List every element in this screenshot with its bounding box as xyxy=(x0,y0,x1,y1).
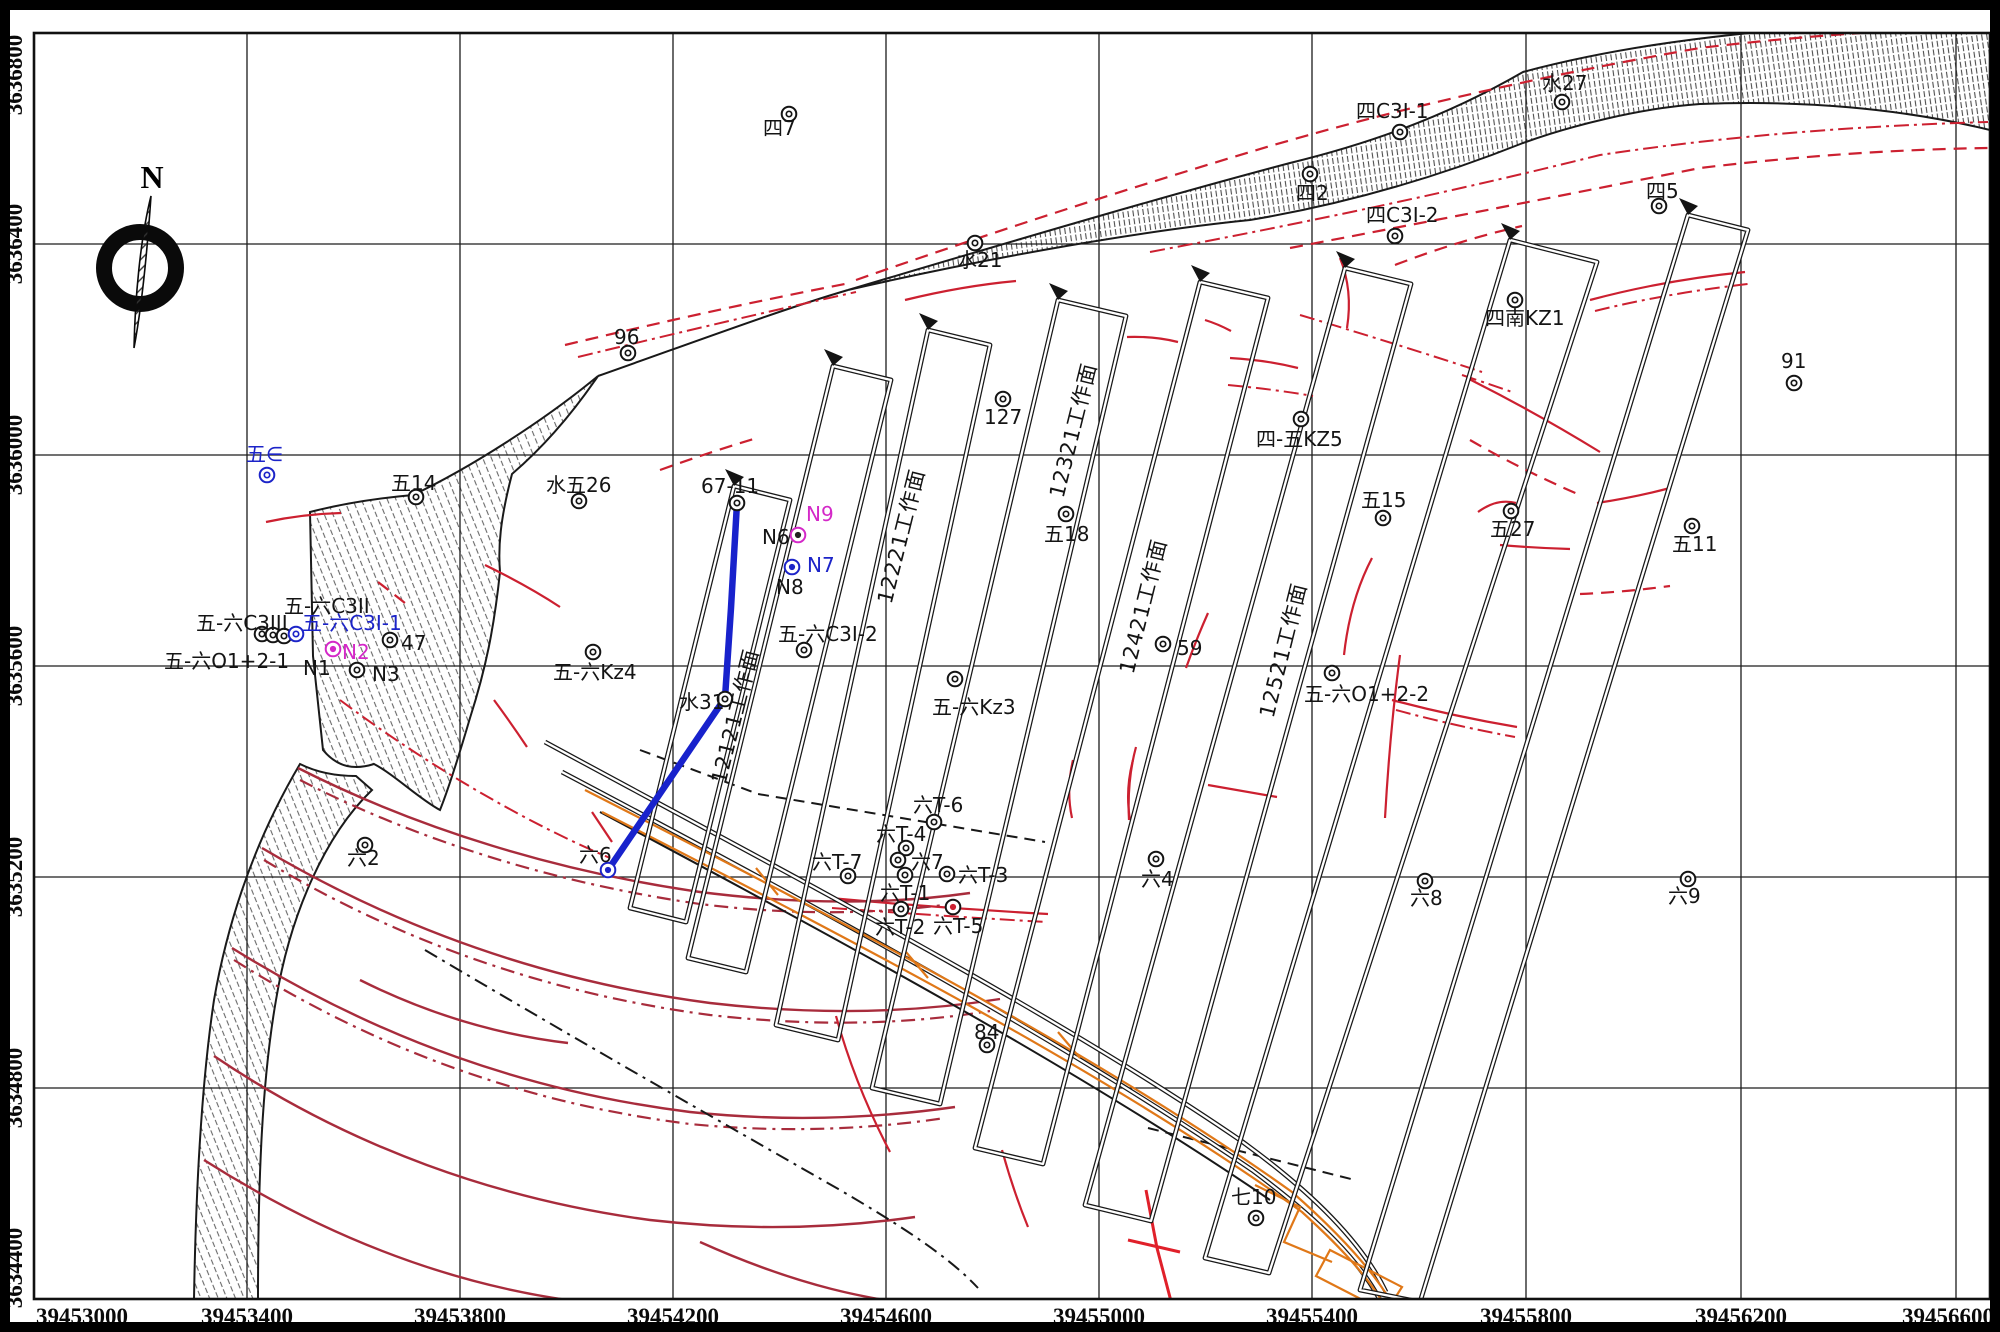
borehole-inner-ring xyxy=(895,857,900,862)
borehole-symbol xyxy=(1325,666,1340,681)
borehole-inner-ring xyxy=(1559,99,1564,104)
borehole-label: N9 xyxy=(806,502,834,526)
borehole-inner-ring xyxy=(354,667,359,672)
borehole-symbol xyxy=(948,672,963,687)
borehole-label: 五-六C3I-1 xyxy=(302,611,402,635)
borehole-label: N6 xyxy=(762,525,790,549)
borehole-label: 五15 xyxy=(1361,488,1406,512)
borehole-symbol xyxy=(946,900,961,915)
borehole-inner-ring xyxy=(1000,396,1005,401)
borehole-inner-ring xyxy=(625,350,630,355)
borehole-inner-ring xyxy=(1298,416,1303,421)
borehole-symbol xyxy=(1294,412,1309,427)
borehole-label: 四7 xyxy=(763,116,796,140)
borehole-label: 六7 xyxy=(911,850,944,874)
borehole-inner-ring xyxy=(1392,233,1397,238)
borehole-inner-ring xyxy=(413,494,418,499)
borehole-symbol xyxy=(1388,229,1403,244)
borehole-label: N2 xyxy=(342,640,370,664)
borehole-inner-ring xyxy=(1380,515,1385,520)
borehole-inner-ring xyxy=(734,500,739,505)
borehole-label: 六4 xyxy=(1141,867,1174,891)
borehole-symbol xyxy=(1303,167,1318,182)
borehole-label: 127 xyxy=(984,405,1022,429)
borehole-symbol xyxy=(1059,507,1074,522)
borehole-label: 六T-6 xyxy=(913,793,963,817)
borehole-label: 七10 xyxy=(1231,1185,1276,1209)
borehole-symbol xyxy=(785,560,800,575)
borehole-inner-ring xyxy=(1153,856,1158,861)
borehole-label: 水31 xyxy=(679,690,724,714)
borehole-label: N1 xyxy=(303,656,331,680)
borehole-label: 五14 xyxy=(391,471,436,495)
borehole-label: 六T-7 xyxy=(812,850,862,874)
borehole-label: N7 xyxy=(807,553,835,577)
borehole-label: 四5 xyxy=(1646,179,1679,203)
borehole-label: 六T-1 xyxy=(880,881,930,905)
borehole-inner-ring xyxy=(952,676,957,681)
borehole-symbol xyxy=(891,853,906,868)
borehole-symbol xyxy=(1376,511,1391,526)
borehole-label: 六T-4 xyxy=(876,822,926,846)
borehole-label: 六T-2 xyxy=(875,915,925,939)
borehole-label: 五27 xyxy=(1490,517,1535,541)
borehole-inner-ring xyxy=(1685,876,1690,881)
borehole-inner-ring xyxy=(944,871,949,876)
borehole-label: 水21 xyxy=(957,248,1002,272)
borehole-symbol xyxy=(1393,125,1408,140)
borehole-inner-ring xyxy=(293,631,298,636)
borehole-label: 59 xyxy=(1177,636,1202,660)
borehole-label: 67-11 xyxy=(701,474,759,498)
borehole-inner-ring xyxy=(1063,511,1068,516)
borehole-label: 五-六Kz4 xyxy=(553,660,637,684)
mine-map-page: 12121工作面12221工作面12321工作面12421工作面12521工作面… xyxy=(0,0,2000,1332)
borehole-inner-dot xyxy=(330,646,336,652)
borehole-label: 五-六C3I-2 xyxy=(778,622,878,646)
borehole-inner-dot xyxy=(795,532,801,538)
borehole-inner-ring xyxy=(1160,641,1165,646)
borehole-inner-ring xyxy=(931,819,936,824)
mine-map-canvas: 12121工作面12221工作面12321工作面12421工作面12521工作面… xyxy=(0,0,2000,1332)
borehole-inner-dot xyxy=(789,564,795,570)
borehole-label: 五-六O1+2-1 xyxy=(164,649,289,673)
borehole-label: 水27 xyxy=(1542,71,1587,95)
borehole-symbol xyxy=(1149,852,1164,867)
borehole-label: 六9 xyxy=(1668,884,1701,908)
borehole-symbol xyxy=(350,663,365,678)
borehole-label: 五-六Kz3 xyxy=(932,695,1016,719)
borehole-symbol xyxy=(326,642,341,657)
borehole-inner-ring xyxy=(1307,171,1312,176)
borehole-inner-dot xyxy=(950,904,956,910)
north-label: N xyxy=(140,159,163,195)
borehole-symbol xyxy=(586,645,601,660)
borehole-inner-ring xyxy=(801,647,806,652)
borehole-inner-ring xyxy=(590,649,595,654)
borehole-inner-ring xyxy=(1253,1215,1258,1220)
borehole-inner-ring xyxy=(387,637,392,642)
borehole-inner-ring xyxy=(264,472,269,477)
borehole-label: 84 xyxy=(974,1020,999,1044)
borehole-label: 六T-5 xyxy=(933,914,983,938)
borehole-inner-ring xyxy=(1397,129,1402,134)
borehole-label: 47 xyxy=(401,631,426,655)
borehole-label: 96 xyxy=(614,325,639,349)
borehole-label: N8 xyxy=(776,575,804,599)
borehole-inner-ring xyxy=(902,872,907,877)
borehole-inner-dot xyxy=(605,867,611,873)
borehole-symbol xyxy=(260,468,275,483)
borehole-inner-ring xyxy=(898,906,903,911)
borehole-label: 四南KZ1 xyxy=(1485,306,1565,330)
borehole-label: 四C3I-2 xyxy=(1366,203,1439,227)
borehole-label: 四-五KZ5 xyxy=(1256,427,1343,451)
borehole-symbol xyxy=(1555,95,1570,110)
borehole-inner-ring xyxy=(1656,203,1661,208)
borehole-symbol xyxy=(791,528,806,543)
borehole-inner-ring xyxy=(1791,380,1796,385)
borehole-label: 六T-3 xyxy=(958,863,1008,887)
borehole-inner-ring xyxy=(1512,297,1517,302)
borehole-inner-ring xyxy=(1508,508,1513,513)
borehole-label: 五18 xyxy=(1044,522,1089,546)
borehole-label: N3 xyxy=(372,662,400,686)
borehole-inner-ring xyxy=(903,845,908,850)
borehole-inner-ring xyxy=(1422,878,1427,883)
borehole-inner-ring xyxy=(845,873,850,878)
borehole-label: 六8 xyxy=(1410,886,1443,910)
borehole-symbol xyxy=(1156,637,1171,652)
borehole-label: 五-六O1+2-2 xyxy=(1304,682,1429,706)
borehole-label: 四2 xyxy=(1296,181,1329,205)
borehole-inner-ring xyxy=(972,240,977,245)
borehole-label: 六6 xyxy=(579,843,612,867)
borehole-symbol xyxy=(1787,376,1802,391)
borehole-inner-ring xyxy=(576,498,581,503)
borehole-label: 91 xyxy=(1781,349,1806,373)
borehole-label: 四C3I-1 xyxy=(1356,99,1429,123)
borehole-inner-ring xyxy=(1329,670,1334,675)
borehole-inner-ring xyxy=(1689,523,1694,528)
borehole-label: 五∈ xyxy=(246,442,283,466)
borehole-label: 六2 xyxy=(347,846,380,870)
borehole-label: 水五26 xyxy=(546,473,611,497)
borehole-label: 五11 xyxy=(1672,532,1717,556)
borehole-symbol xyxy=(1249,1211,1264,1226)
borehole-label: 五-六C3III xyxy=(196,611,288,635)
